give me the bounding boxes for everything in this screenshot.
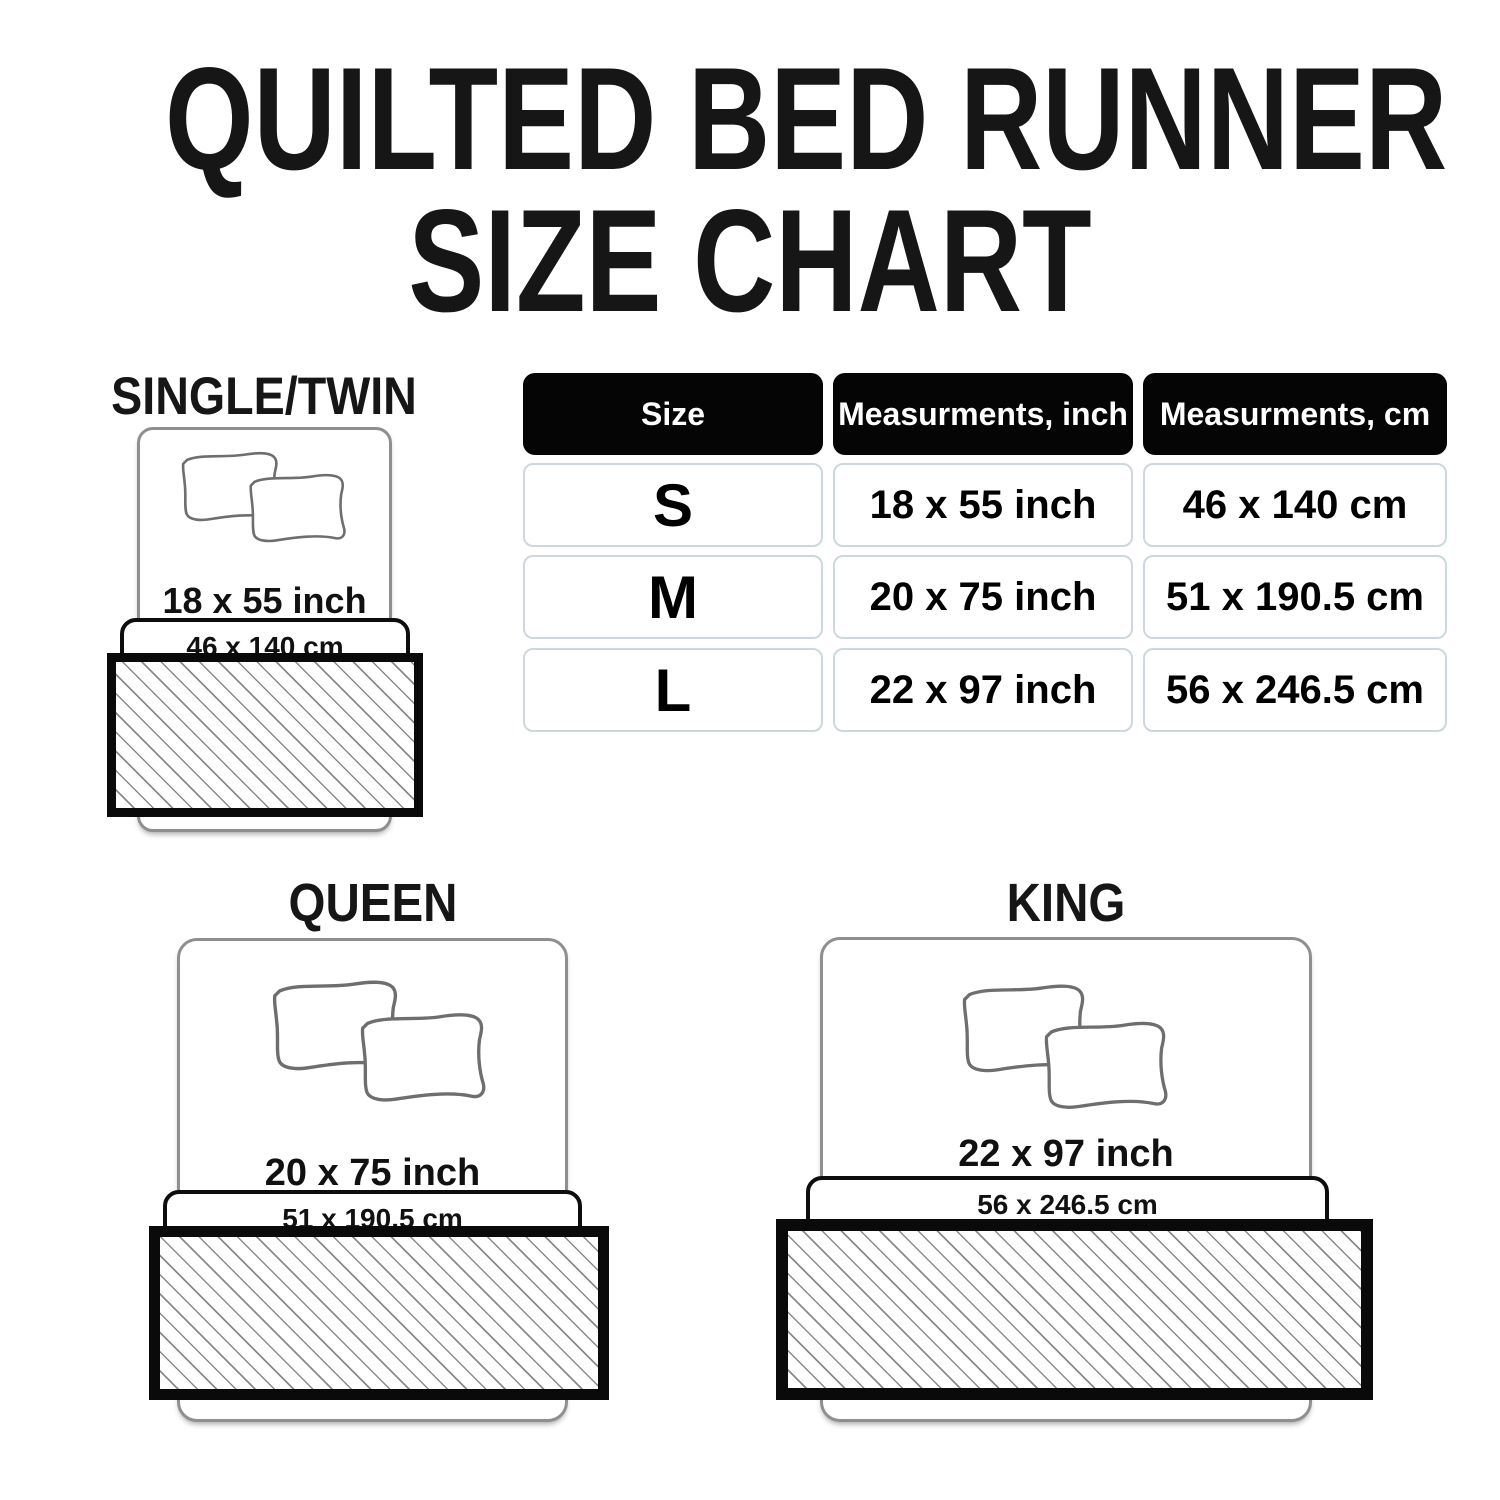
table-cell-size-l: L [523,648,823,732]
table-cell-cm-m: 51 x 190.5 cm [1143,555,1447,639]
table-cell-inch-l: 22 x 97 inch [833,648,1133,732]
table-header-size: Size [523,373,823,455]
pillow-icon [362,1015,483,1100]
quilted-bed-runner-size-chart: QUILTED BED RUNNERSIZE CHART SINGLE/TWIN… [0,0,1500,1500]
table-header-measurements-inch: Measurments, inch [833,373,1133,455]
table-cell-inch-s: 18 x 55 inch [833,463,1133,547]
pillows-icon-king [945,955,1185,1130]
pillow-icon [251,475,345,541]
table-cell-inch-m: 20 x 75 inch [833,555,1133,639]
pillow-icon [1046,1023,1165,1107]
table-cell-cm-s: 46 x 140 cm [1143,463,1447,547]
page-title-line1: QUILTED BED RUNNER [165,37,1447,200]
table-cell-cm-l: 56 x 246.5 cm [1143,648,1447,732]
dimension-inch-queen: 20 x 75 inch [177,1151,568,1195]
dimension-inch-single: 18 x 55 inch [137,579,392,623]
page-title-line2: SIZE CHART [408,179,1091,342]
table-cell-size-s: S [523,463,823,547]
pillows-icon-single [165,440,360,550]
dimension-inch-king: 22 x 97 inch [820,1132,1312,1176]
section-label-single-twin: SINGLE/TWIN [106,366,423,427]
dimension-cm-king: 56 x 246.5 cm [977,1189,1158,1220]
pillows-icon-queen [255,955,500,1120]
bed-runner-swatch-queen [149,1226,609,1400]
table-cell-size-m: M [523,555,823,639]
bed-runner-swatch-king [776,1219,1373,1400]
table-header-measurements-cm: Measurments, cm [1143,373,1447,455]
section-label-king: KING [934,872,1198,934]
section-label-queen: QUEEN [241,872,505,934]
page-title: QUILTED BED RUNNERSIZE CHART [165,48,1335,332]
bed-runner-swatch-single [107,653,423,817]
